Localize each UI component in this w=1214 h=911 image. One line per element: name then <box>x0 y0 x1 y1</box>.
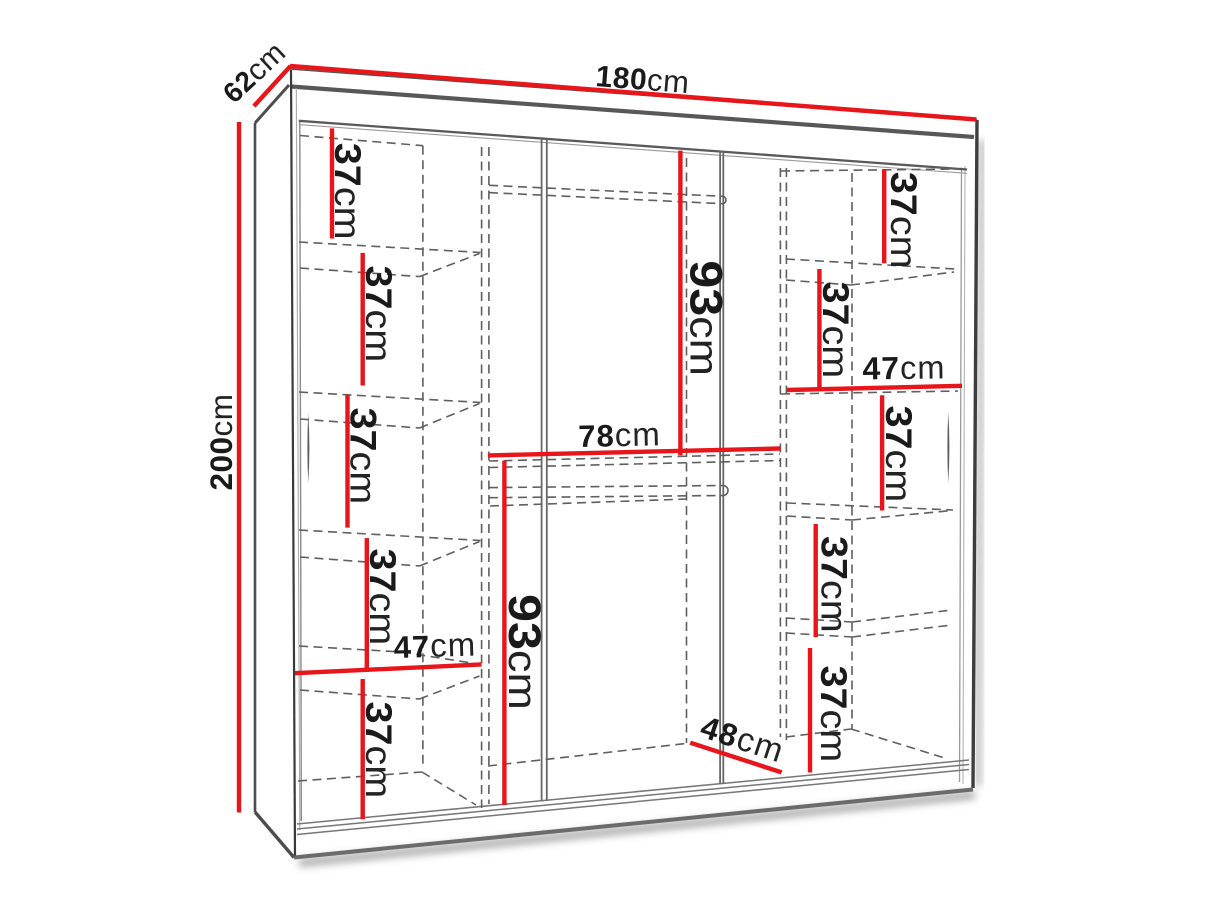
svg-text:200cm: 200cm <box>203 393 239 490</box>
svg-text:37cm: 37cm <box>357 266 399 363</box>
svg-text:37cm: 37cm <box>882 172 924 269</box>
svg-text:47cm: 47cm <box>862 349 945 386</box>
svg-text:93cm: 93cm <box>499 594 549 710</box>
svg-text:180cm: 180cm <box>594 58 690 100</box>
svg-text:37cm: 37cm <box>813 536 855 633</box>
svg-text:37cm: 37cm <box>815 282 857 379</box>
svg-text:37cm: 37cm <box>357 702 399 799</box>
svg-text:93cm: 93cm <box>680 260 730 376</box>
svg-text:37cm: 37cm <box>813 666 855 763</box>
svg-text:47cm: 47cm <box>393 626 477 665</box>
svg-text:37cm: 37cm <box>342 408 384 505</box>
svg-text:78cm: 78cm <box>578 415 661 454</box>
svg-text:37cm: 37cm <box>878 406 920 503</box>
svg-text:37cm: 37cm <box>326 143 368 240</box>
